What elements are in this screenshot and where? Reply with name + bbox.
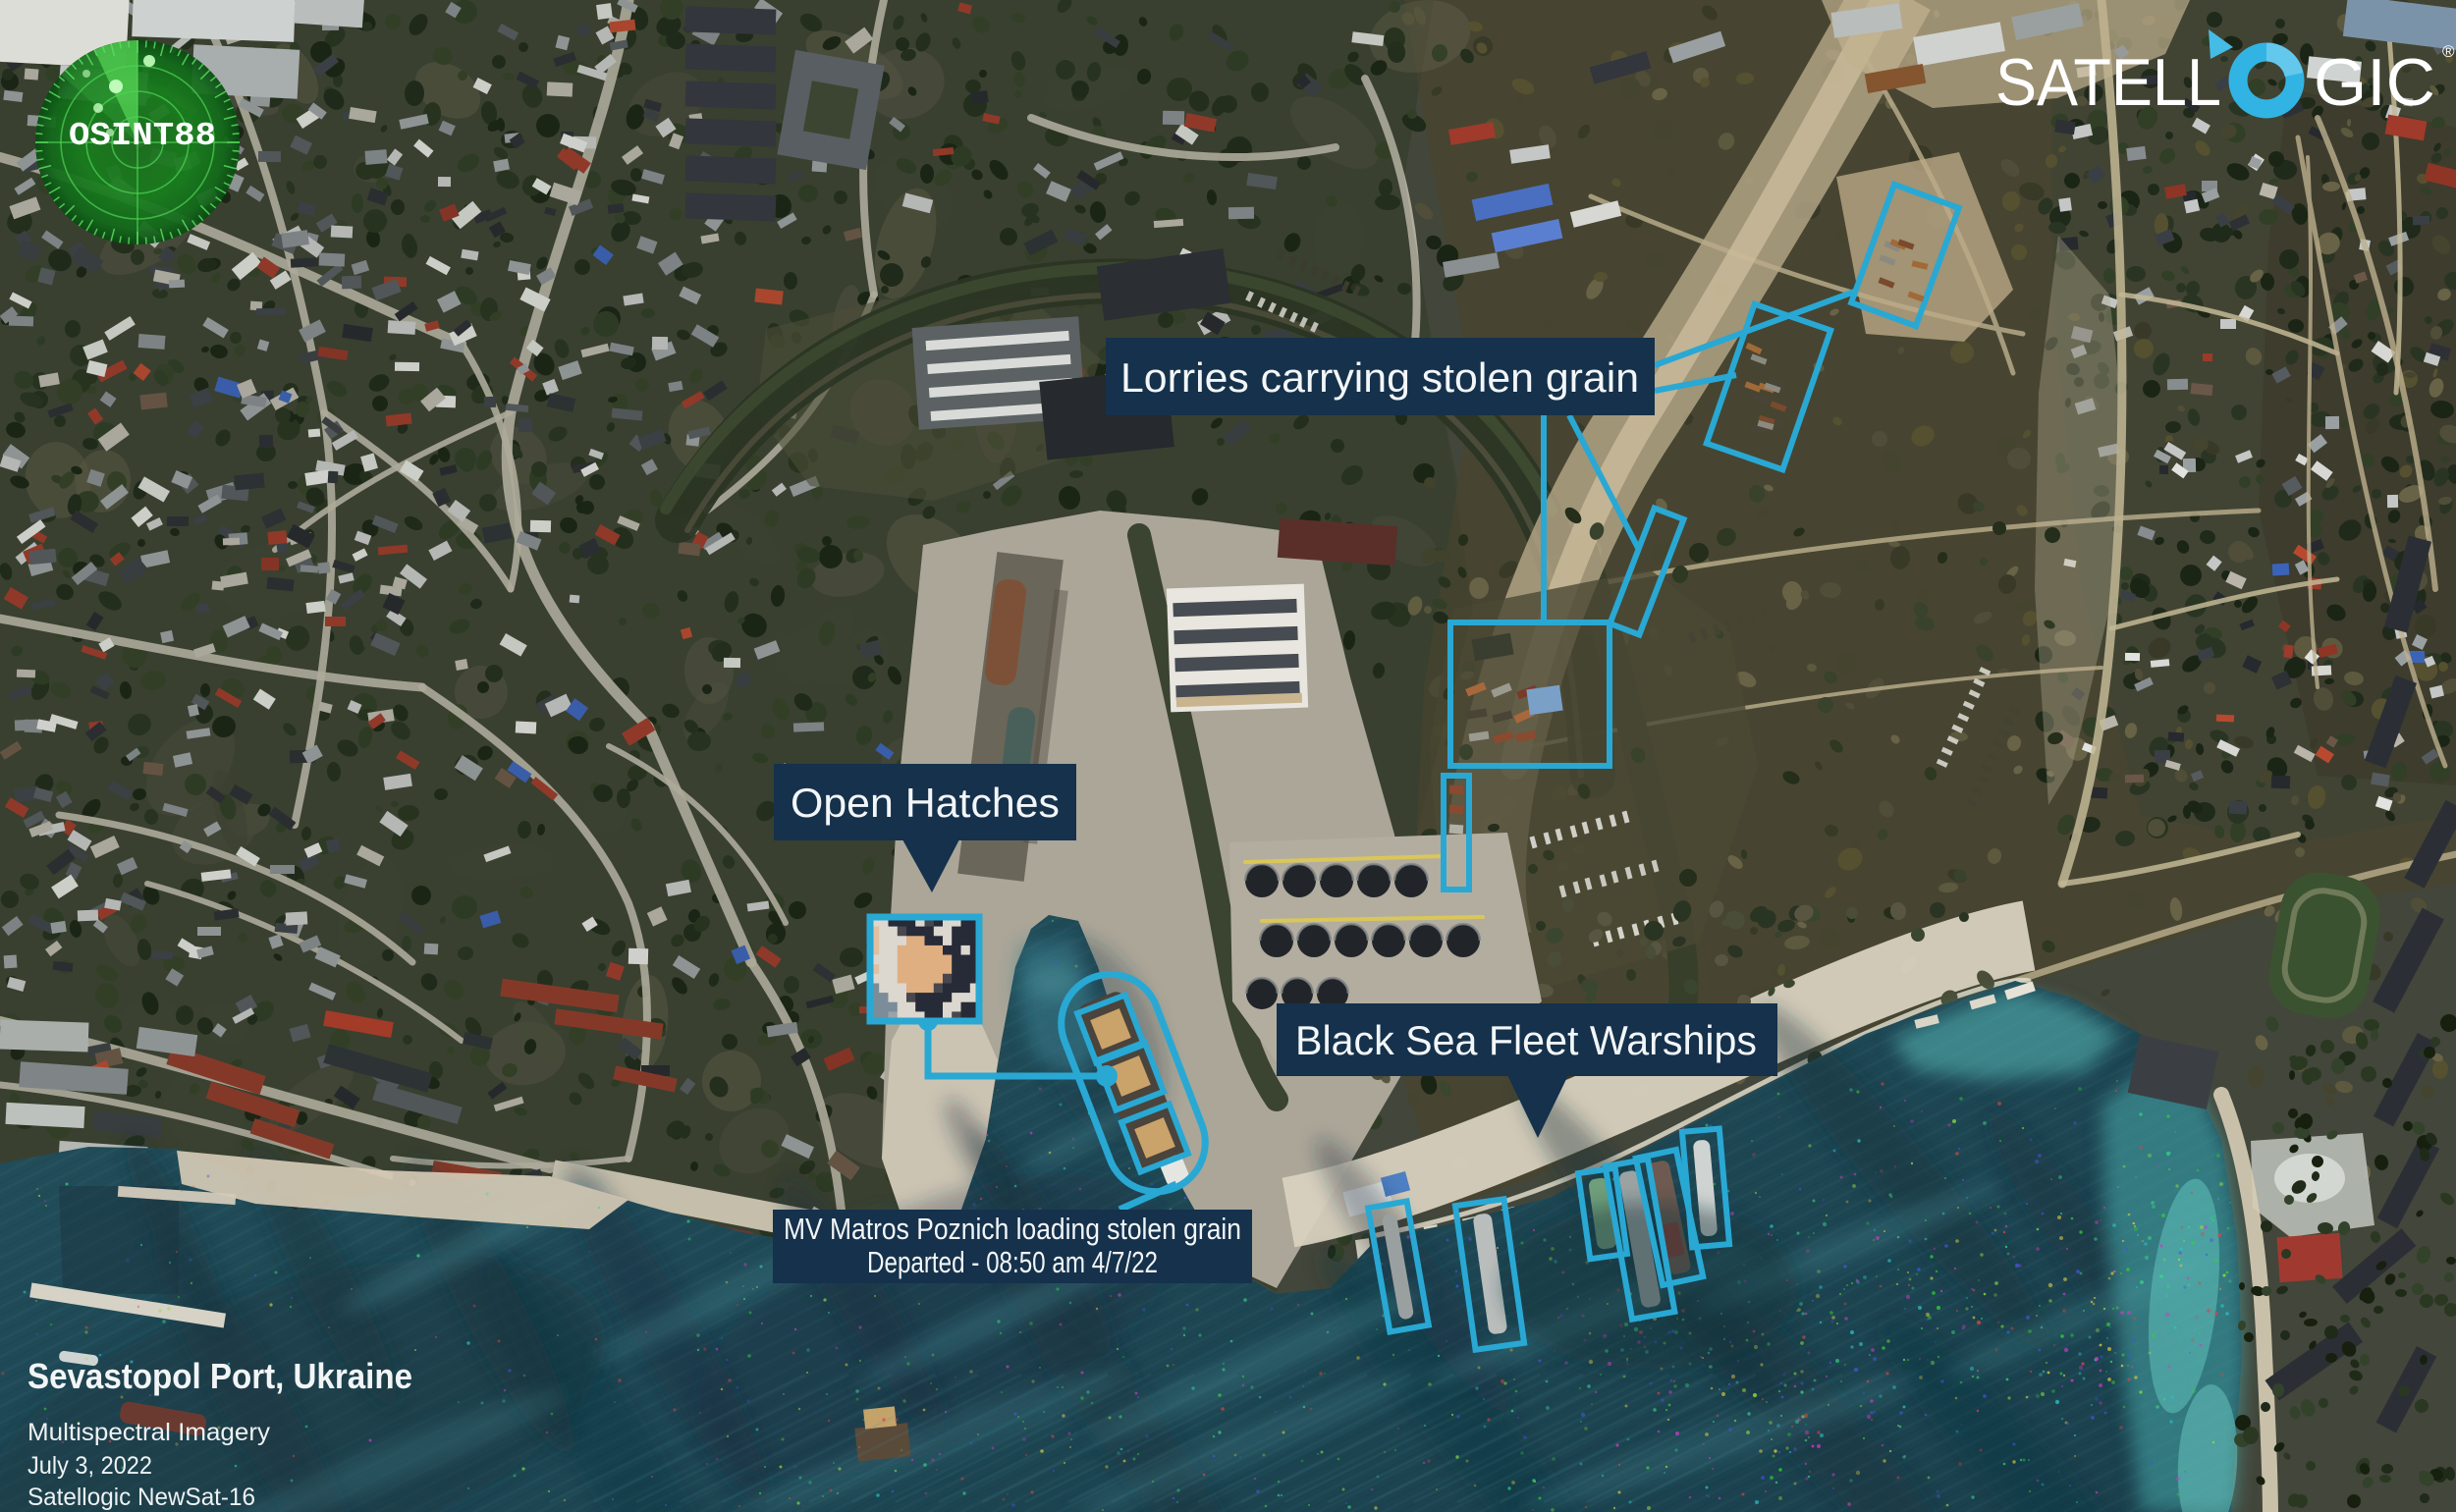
svg-text:Lorries carrying stolen grain: Lorries carrying stolen grain xyxy=(1120,354,1639,401)
svg-text:Satellogic NewSat-16: Satellogic NewSat-16 xyxy=(27,1484,255,1511)
svg-text:SATELL: SATELL xyxy=(1995,45,2221,120)
svg-text:Departed - 08:50 am 4/7/22: Departed - 08:50 am 4/7/22 xyxy=(867,1245,1158,1279)
svg-text:July 3, 2022: July 3, 2022 xyxy=(27,1452,152,1480)
svg-text:Black Sea Fleet Warships: Black Sea Fleet Warships xyxy=(1295,1017,1757,1063)
svg-text:®: ® xyxy=(2442,42,2455,61)
svg-text:GIC: GIC xyxy=(2314,45,2435,120)
svg-text:MV Matros Poznich loading stol: MV Matros Poznich loading stolen grain xyxy=(784,1212,1241,1246)
svg-text:Open Hatches: Open Hatches xyxy=(791,780,1060,826)
svg-text:Multispectral Imagery: Multispectral Imagery xyxy=(27,1419,271,1446)
svg-text:Sevastopol Port, Ukraine: Sevastopol Port, Ukraine xyxy=(27,1356,412,1396)
svg-text:OSINT88: OSINT88 xyxy=(69,118,216,154)
